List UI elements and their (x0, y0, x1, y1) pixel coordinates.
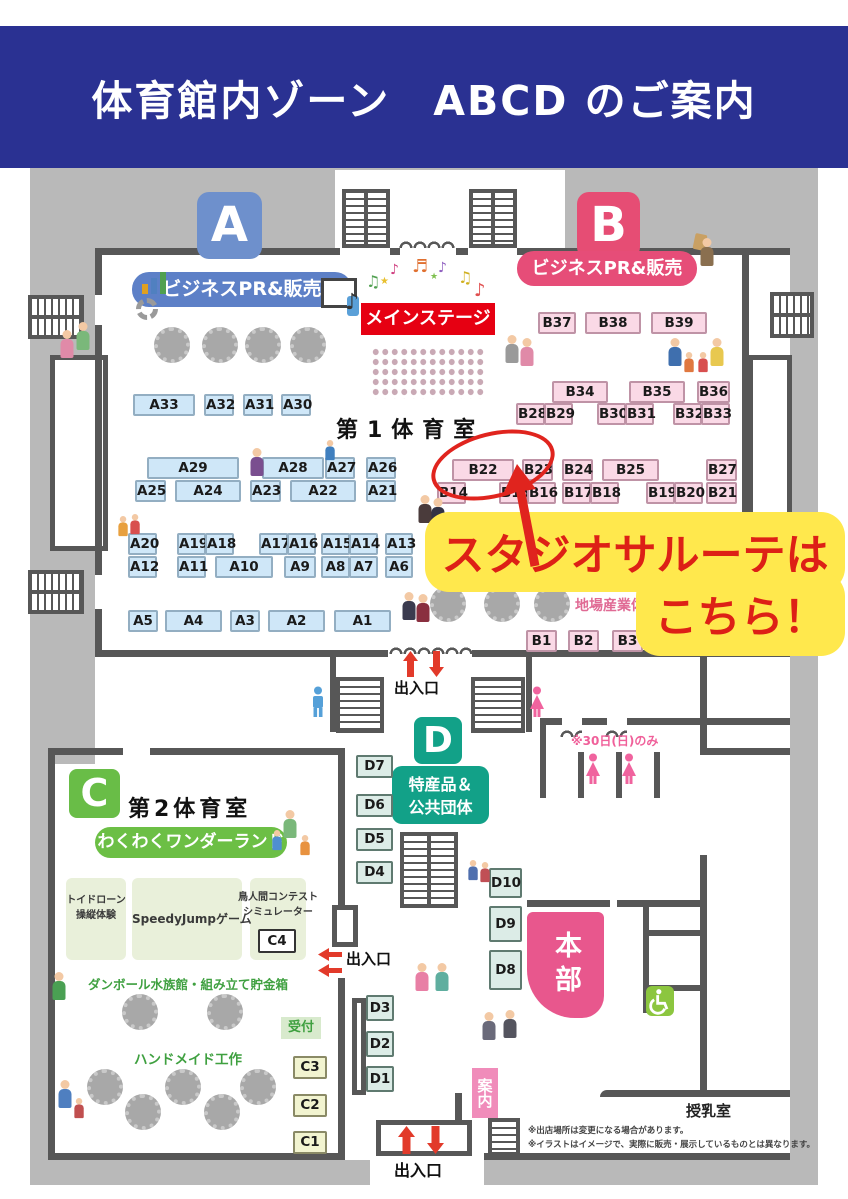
music-note-icon: ♫ (458, 268, 472, 287)
person-figure (480, 862, 489, 882)
booth-A24: A24 (175, 480, 241, 502)
tokusan-line1: 特産品＆ (392, 773, 489, 796)
booth-B38: B38 (585, 312, 641, 334)
booth-B39: B39 (651, 312, 707, 334)
zone-d-badge: D (414, 717, 462, 764)
wall (48, 1153, 345, 1160)
wall (527, 900, 610, 907)
zone-c-badge: C (69, 769, 120, 818)
booth-B24: B24 (562, 459, 593, 481)
round-table (154, 327, 190, 363)
booth-A30: A30 (281, 394, 311, 416)
booth-B21: B21 (706, 482, 737, 504)
gym2-title: 第2体育室 (128, 791, 251, 823)
men-restroom-icon (310, 686, 326, 718)
booth-B1: B1 (526, 630, 557, 652)
stairs-top-right (469, 189, 517, 248)
wall (540, 718, 546, 798)
bar-chart-icon (142, 272, 168, 294)
star-icon: ★ (380, 276, 389, 287)
person-figure (710, 338, 723, 366)
music-note-icon: ♪ (474, 280, 486, 301)
header-bar: 体育館内ゾーン ABCD のご案内 (0, 26, 848, 168)
wall (707, 748, 790, 755)
booth-B17: B17 (562, 482, 591, 504)
booth-B25: B25 (602, 459, 659, 481)
jiba-sangyo-label: 地場産業体 (575, 595, 645, 615)
round-table (204, 1094, 240, 1130)
cardboard-label: ダンボール水族館・組み立て貯金箱 (88, 974, 288, 993)
wall (390, 248, 400, 255)
stairs-outside-right (770, 292, 814, 338)
person-figure (300, 835, 309, 855)
person-figure (418, 495, 431, 523)
wall (654, 752, 660, 798)
entrance-arrow-up-icon (403, 651, 418, 677)
entrance-label-bottom: 出入口 (394, 1157, 442, 1181)
booth-B19: B19 (646, 482, 675, 504)
round-table (202, 327, 238, 363)
person-figure (468, 860, 477, 880)
person-figure (74, 1098, 83, 1118)
wall (600, 1090, 790, 1097)
entrance-arrow-down-icon (429, 651, 444, 677)
booth-A9: A9 (284, 556, 316, 578)
star-icon: ★ (430, 272, 438, 282)
booth-B27: B27 (706, 459, 737, 481)
booth-A29: A29 (147, 457, 239, 479)
tokusan-line2: 公共団体 (392, 796, 489, 819)
booth-D9: D9 (489, 906, 522, 942)
nursing-room-label: 授乳室 (686, 1100, 731, 1121)
booth-A4: A4 (165, 610, 222, 632)
venue-map-poster: { "header": { "title": "体育館内ゾーン ABCD のご案… (0, 0, 848, 1199)
door-curtain-top (399, 237, 455, 248)
map-surround-right (790, 248, 818, 1185)
booth-B31: B31 (625, 403, 654, 425)
gym1-title: 第1体育室 (336, 412, 484, 444)
wall (95, 650, 388, 657)
round-table (122, 994, 158, 1030)
booth-B36: B36 (697, 381, 730, 403)
booth-A14: A14 (349, 533, 378, 555)
booth-A16: A16 (287, 533, 316, 555)
person-figure (272, 830, 281, 850)
booth-A3: A3 (230, 610, 260, 632)
booth-A21: A21 (366, 480, 396, 502)
booth-A33: A33 (133, 394, 195, 416)
music-note-icon: ♫ (366, 272, 380, 291)
person-figure (505, 335, 518, 363)
main-stage-label: メインステージ (361, 303, 495, 335)
booth-B2: B2 (568, 630, 599, 652)
stairs-outside-left-lower (28, 570, 84, 614)
birdman-label: 鳥人間コンテスト シミュレーター (238, 890, 318, 920)
booth-A10: A10 (215, 556, 273, 578)
booth-A26: A26 (366, 457, 396, 479)
booth-B37: B37 (538, 312, 576, 334)
entrance-label-left: 出入口 (346, 948, 391, 969)
hq-box: 本部 (527, 912, 604, 1018)
wall (700, 855, 707, 1090)
wall (95, 248, 102, 295)
music-note-icon: ♪ (438, 260, 447, 276)
wall (48, 748, 123, 755)
footnote-2: ※イラストはイメージで、実際に販売・展示しているものとは異なります。 (528, 1138, 815, 1150)
booth-B18: B18 (590, 482, 619, 504)
map-surround-left-lower (30, 764, 48, 1185)
round-table (240, 1069, 276, 1105)
birdman-line1: 鳥人間コンテスト (238, 890, 318, 905)
booth-A27: A27 (325, 457, 355, 479)
stairs-zone-d (400, 832, 458, 908)
stairs-info-corner (488, 1118, 520, 1156)
person-figure (402, 592, 415, 620)
audience-seats (371, 347, 485, 399)
corridor-box (332, 905, 358, 947)
corridor-counter (352, 998, 366, 1095)
person-figure (58, 1080, 71, 1108)
booth-A19: A19 (177, 533, 206, 555)
person-figure (283, 810, 296, 838)
stairs-corridor-right (471, 677, 525, 733)
booth-B33: B33 (701, 403, 730, 425)
person-figure (118, 516, 127, 536)
person-figure (668, 338, 681, 366)
wall (649, 930, 700, 936)
annotation-text-line2: こちら！ (655, 583, 827, 645)
booth-D2: D2 (366, 1031, 394, 1057)
stairs-corridor-left (336, 677, 384, 733)
round-table (125, 1094, 161, 1130)
red-arrow-annotation (495, 462, 555, 572)
booth-C3: C3 (293, 1056, 327, 1079)
booth-C2: C2 (293, 1094, 327, 1117)
person-figure (503, 1010, 516, 1038)
person-figure (250, 448, 263, 476)
music-note-icon: ♪ (390, 262, 399, 278)
footnote-1: ※出店場所は変更になる場合があります。 (528, 1124, 688, 1136)
annotation-bubble-line2: こちら！ (636, 572, 845, 656)
tokusan-label: 特産品＆ 公共団体 (392, 766, 489, 824)
booth-A11: A11 (177, 556, 206, 578)
wall (456, 248, 468, 255)
person-figure (684, 352, 693, 372)
wall (582, 718, 607, 725)
wall (95, 325, 102, 575)
booth-D10: D10 (489, 868, 522, 898)
booth-A2: A2 (268, 610, 325, 632)
person-figure (60, 330, 73, 358)
booth-A18: A18 (205, 533, 234, 555)
booth-A12: A12 (128, 556, 157, 578)
toy-drone-line1: トイドローン (66, 893, 126, 908)
person-figure (52, 972, 65, 1000)
round-table (165, 1069, 201, 1105)
booth-A8: A8 (321, 556, 350, 578)
booth-A17: A17 (259, 533, 288, 555)
booth-D7: D7 (356, 755, 393, 778)
person-figure (520, 338, 533, 366)
booth-A15: A15 (321, 533, 350, 555)
entrance-arrow-left-icon (318, 948, 342, 961)
booth-D3: D3 (366, 995, 394, 1021)
women-restroom-icon (528, 686, 546, 718)
zone-a-badge: A (197, 192, 262, 259)
person-figure (698, 352, 707, 372)
booth-A6: A6 (385, 556, 413, 578)
booth-B30: B30 (597, 403, 626, 425)
toy-drone-label: トイドローン 操縦体験 (66, 893, 126, 923)
speedy-jump-label: SpeedyJumpゲーム (132, 910, 242, 927)
handmade-label: ハンドメイド工作 (134, 1048, 242, 1068)
booth-A31: A31 (243, 394, 273, 416)
birdman-line2: シミュレーター (238, 905, 318, 920)
booth-A5: A5 (128, 610, 158, 632)
booth-A23: A23 (250, 480, 281, 502)
zone-b-badge: B (577, 192, 640, 259)
booth-B32: B32 (673, 403, 702, 425)
info-box: 案内 (472, 1068, 498, 1118)
booth-B28: B28 (516, 403, 545, 425)
booth-A22: A22 (290, 480, 356, 502)
reception-label: 受付 (281, 1017, 321, 1039)
toy-drone-line2: 操縦体験 (66, 908, 126, 923)
booth-B34: B34 (552, 381, 608, 403)
booth-B20: B20 (674, 482, 703, 504)
entrance-arrow-up-icon (398, 1126, 415, 1154)
wall (617, 900, 707, 907)
booth-D6: D6 (356, 794, 393, 817)
booth-A13: A13 (385, 533, 413, 555)
gear-icon (136, 298, 158, 320)
music-note-icon: ♪ (345, 290, 359, 315)
sunday-only-note: ※30日(日)のみ (571, 732, 658, 749)
booth-C1: C1 (293, 1131, 327, 1154)
booth-C4: C4 (258, 929, 296, 953)
round-table (87, 1069, 123, 1105)
booth-A7: A7 (349, 556, 378, 578)
booth-B29: B29 (544, 403, 573, 425)
booth-A20: A20 (128, 533, 157, 555)
booth-A25: A25 (135, 480, 166, 502)
bottom-entrance-box (376, 1120, 472, 1156)
wall (627, 718, 790, 725)
person-figure (482, 1012, 495, 1040)
entrance-arrow-left-icon (318, 964, 342, 977)
booth-D5: D5 (356, 828, 393, 851)
person-figure (435, 963, 448, 991)
booth-A1: A1 (334, 610, 391, 632)
booth-B35: B35 (629, 381, 685, 403)
entrance-arrow-down-icon (427, 1126, 444, 1154)
wall (48, 748, 55, 1160)
round-table (207, 994, 243, 1030)
booth-D4: D4 (356, 861, 393, 884)
booth-A32: A32 (204, 394, 234, 416)
wall (338, 978, 345, 1160)
booth-A28: A28 (262, 457, 324, 479)
wheelchair-icon (646, 986, 674, 1016)
person-figure (700, 238, 713, 266)
round-table (245, 327, 281, 363)
women-restroom-icon (620, 753, 638, 785)
person-figure (416, 594, 429, 622)
person-figure (130, 514, 139, 534)
booth-D8: D8 (489, 950, 522, 990)
booth-D1: D1 (366, 1066, 394, 1092)
page-title: 体育館内ゾーン ABCD のご案内 (91, 67, 756, 127)
music-note-icon: ♬ (412, 256, 428, 277)
wall (700, 657, 707, 755)
wonderland-label: わくわくワンダーランド (95, 827, 287, 858)
person-figure (325, 440, 334, 460)
round-table (290, 327, 326, 363)
stairs-top-left (342, 189, 390, 248)
business-pr-label-b: ビジネスPR&販売 (517, 251, 697, 286)
entrance-label-top: 出入口 (394, 677, 439, 698)
person-figure (76, 322, 89, 350)
person-figure (415, 963, 428, 991)
wall (150, 748, 345, 755)
women-restroom-icon (584, 753, 602, 785)
